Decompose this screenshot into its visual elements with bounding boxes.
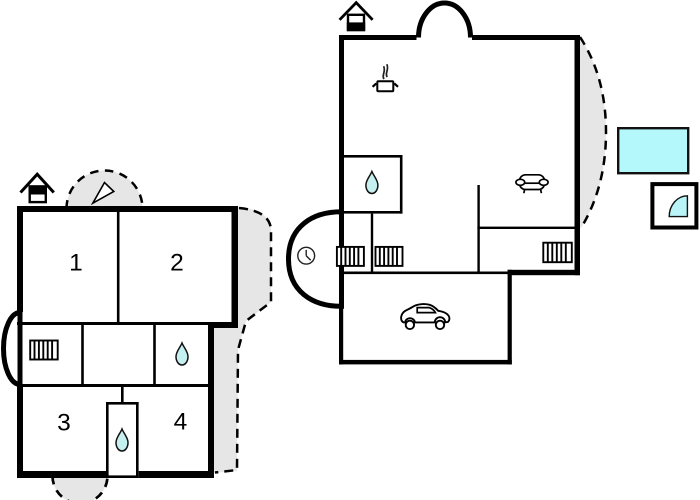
svg-text:1: 1	[69, 250, 83, 277]
svg-text:2: 2	[170, 250, 184, 277]
svg-text:3: 3	[57, 410, 71, 437]
svg-text:4: 4	[174, 409, 188, 436]
